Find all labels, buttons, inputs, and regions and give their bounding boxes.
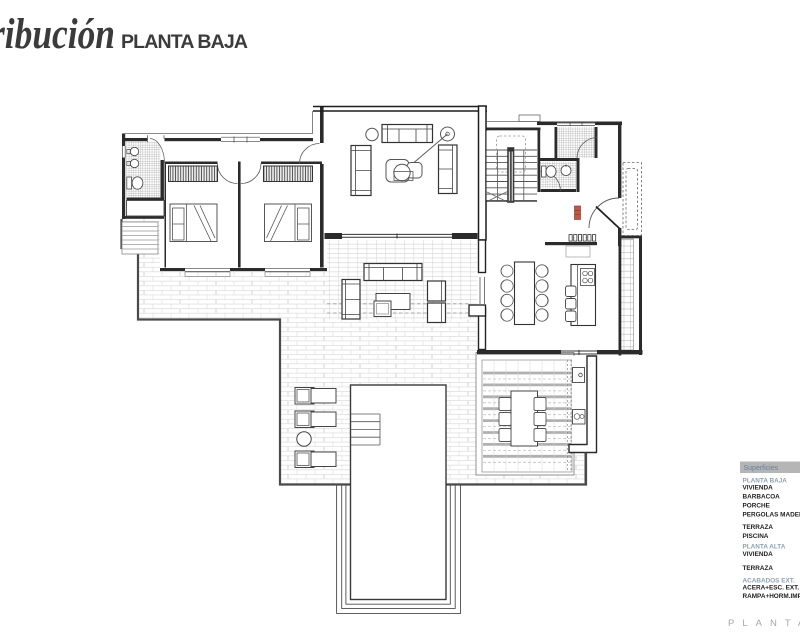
svg-text:PLANTA BAJA: PLANTA BAJA (121, 31, 248, 53)
svg-text:TERRAZA: TERRAZA (743, 565, 774, 572)
svg-text:RAMPA+HORM.IMP.: RAMPA+HORM.IMP. (743, 593, 800, 600)
svg-text:PLANTA ALTA: PLANTA ALTA (743, 544, 786, 551)
svg-text:PISCINA: PISCINA (743, 533, 769, 540)
svg-text:PLANTA BAJA: PLANTA BAJA (743, 478, 788, 485)
svg-text:TERRAZA: TERRAZA (743, 524, 774, 531)
svg-text:VIVIENDA: VIVIENDA (743, 551, 774, 558)
svg-text:BARBACOA: BARBACOA (743, 494, 781, 501)
svg-text:ACERA+ESC. EXT.: ACERA+ESC. EXT. (743, 585, 800, 592)
svg-text:PORCHE: PORCHE (743, 503, 771, 510)
svg-text:ACABADOS EXT.: ACABADOS EXT. (743, 578, 795, 585)
svg-text:PERGOLAS MADERA: PERGOLAS MADERA (743, 512, 800, 519)
svg-text:PLANTA BAJ: PLANTA BAJ (728, 618, 800, 629)
svg-text:VIVIENDA: VIVIENDA (743, 485, 774, 492)
svg-text:Superficies: Superficies (744, 465, 779, 472)
svg-text:ribución: ribución (0, 11, 115, 58)
